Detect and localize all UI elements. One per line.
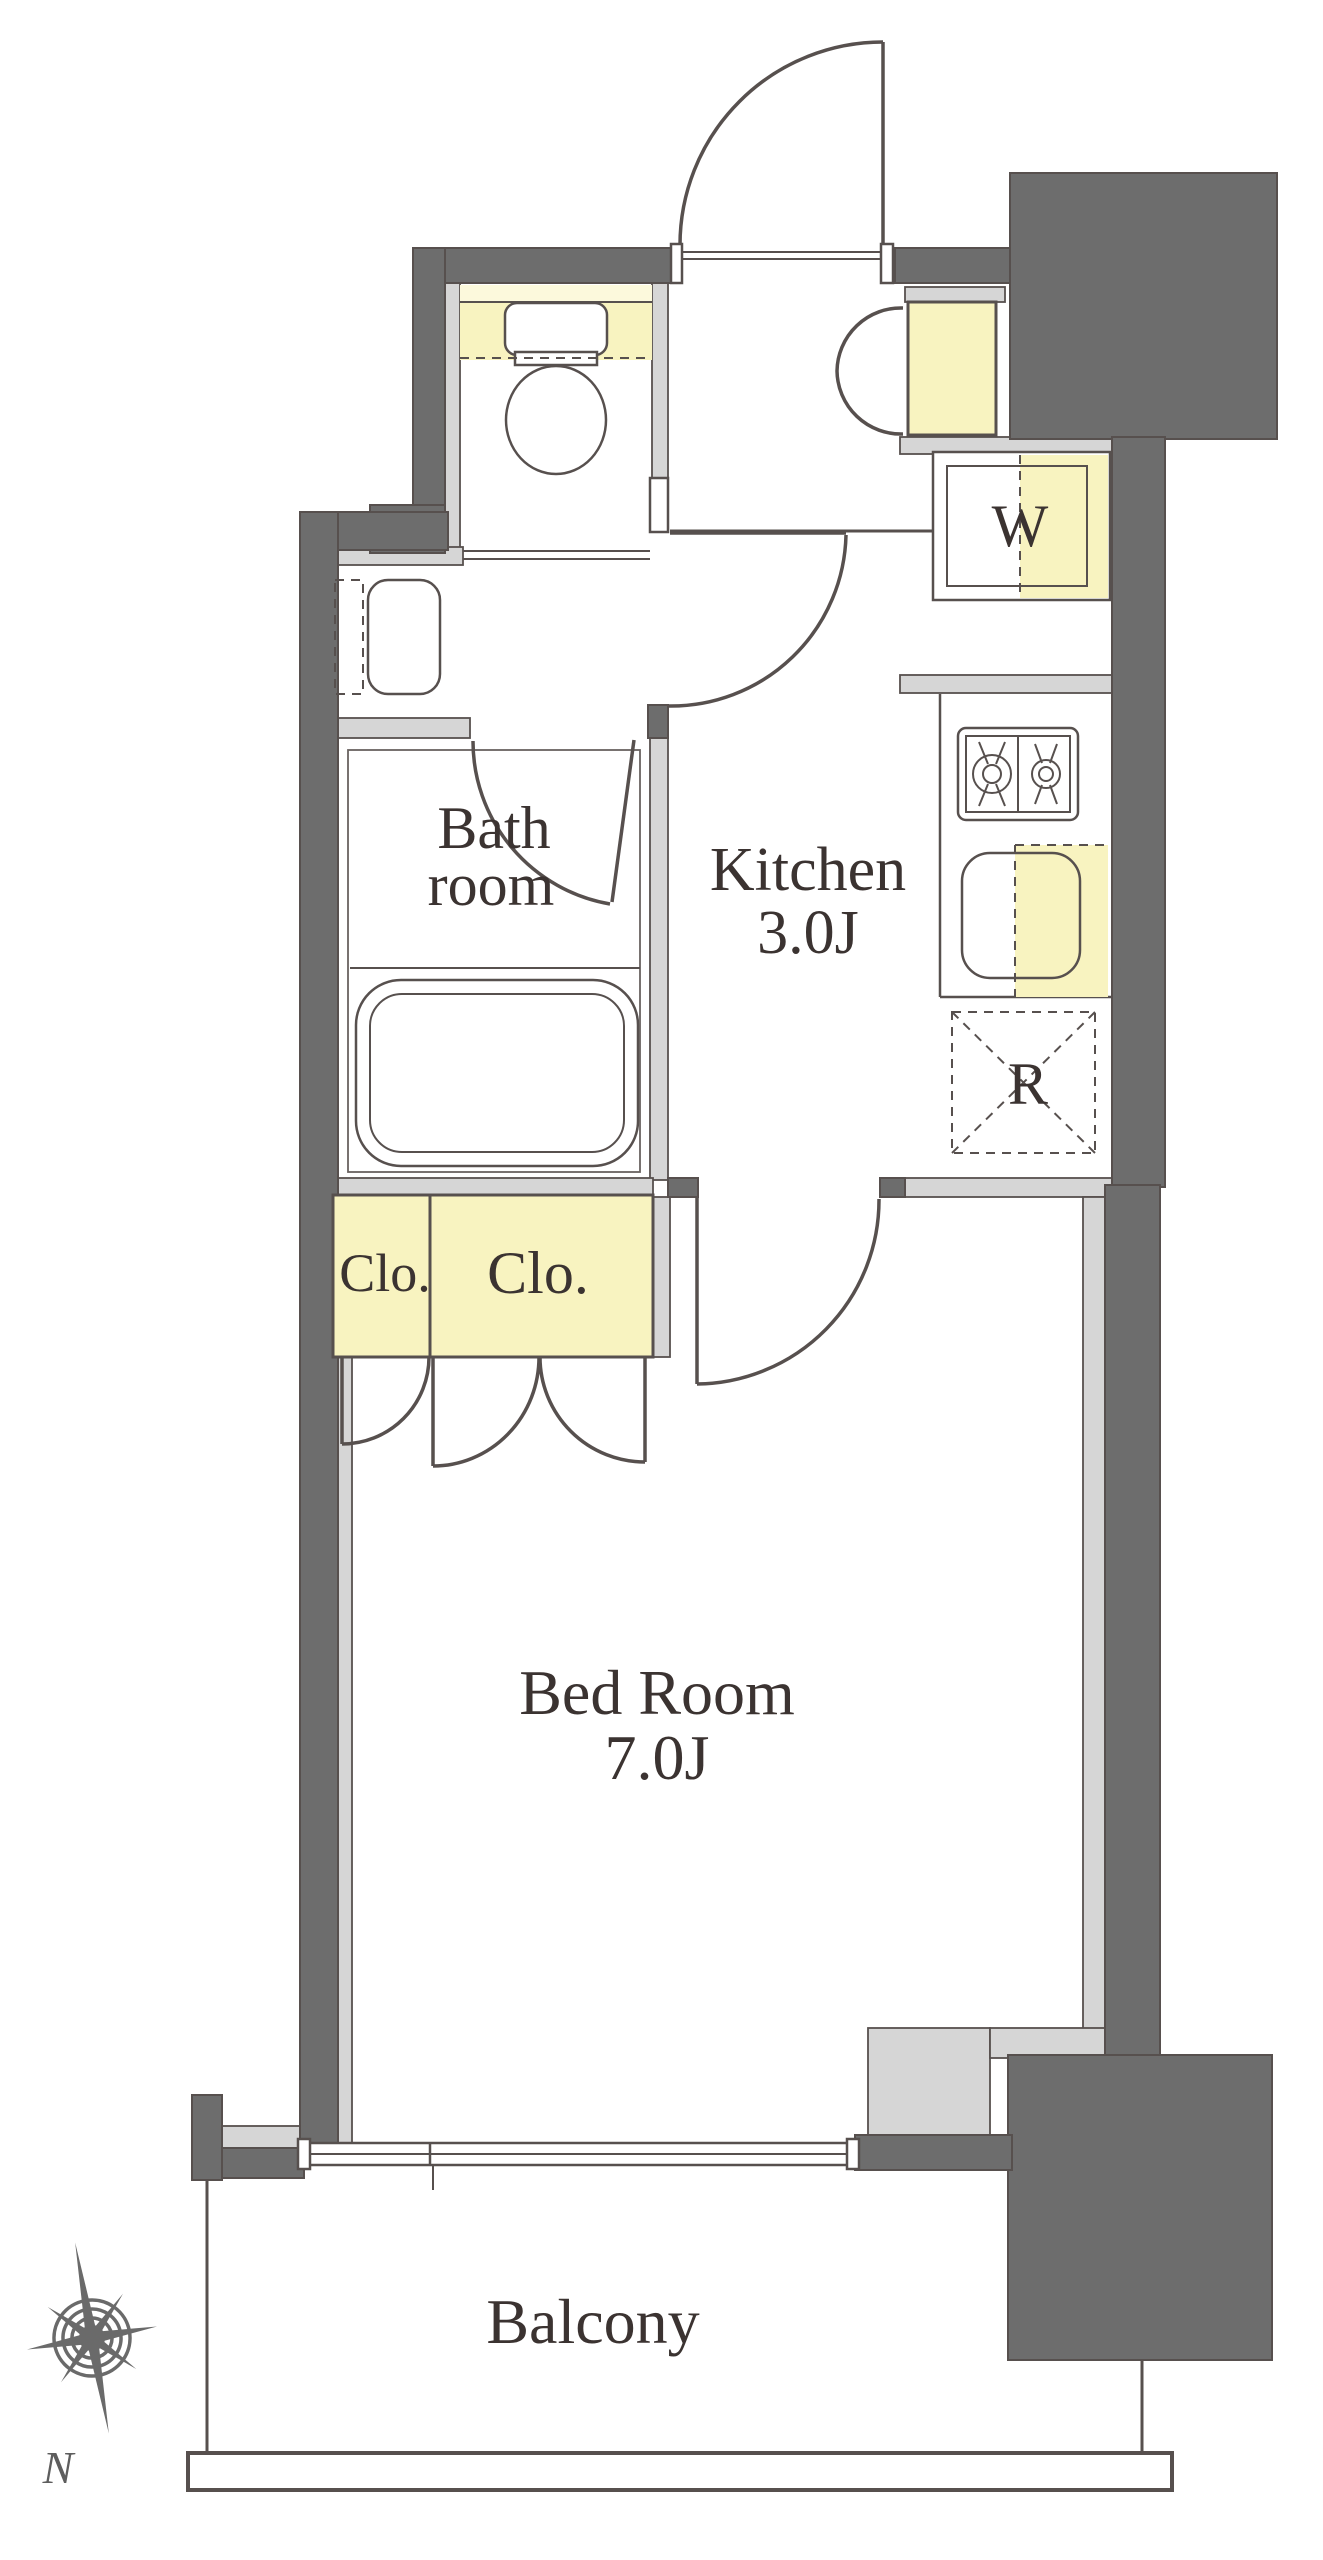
entry-door-jamb-right [881, 244, 893, 283]
toilet-tank [505, 303, 607, 355]
bedroom-door-jamb-right [880, 1178, 905, 1197]
toilet-shelf-strip [460, 285, 652, 302]
bath-divider-wall [336, 718, 470, 738]
washroom [335, 580, 440, 694]
bathroom-label-line2: room [428, 852, 555, 918]
entry-door-arc [680, 42, 883, 245]
bedroom-door-arc [697, 1199, 879, 1384]
bottom-left-stub [192, 2095, 222, 2180]
bath-kitchen-wall [650, 738, 668, 1180]
bottom-wall-right [855, 2135, 1012, 2170]
sink-highlight [1015, 845, 1108, 997]
floor-plan-page: Bath room Kitchen 3.0J W R Clo. Clo. Bed… [0, 0, 1323, 2560]
right-wall-bedroom [1105, 1185, 1160, 2060]
closet-large-door-right-arc [540, 1357, 645, 1462]
bottom-left-liner [218, 2126, 304, 2150]
shoe-cabinet-door-lower-arc [837, 371, 903, 434]
stove [958, 728, 1078, 820]
bedroom-right-liner [1083, 1197, 1105, 2040]
shoe-cabinet [908, 302, 996, 435]
compass-icon [10, 2231, 174, 2445]
washroom-door-jamb [650, 478, 668, 532]
bedroom-area-label: 7.0J [605, 1722, 710, 1793]
bedroom-label: Bed Room [519, 1657, 795, 1728]
refrigerator-label: R [1008, 1051, 1048, 1117]
closet-large-label: Clo. [487, 1240, 589, 1306]
pipe-shaft-block-top [1010, 173, 1277, 439]
bathtub-outer [356, 980, 638, 1166]
washer-label: W [992, 493, 1049, 559]
laundry-cabinet [335, 580, 363, 694]
closet-side-wall [653, 1197, 670, 1357]
washbasin [368, 580, 440, 694]
entry-right-wall [895, 248, 1012, 283]
window-jamb-left [298, 2139, 310, 2169]
closet-small-door-arc [342, 1357, 429, 1444]
shoe-cabinet-top-wall [905, 287, 1005, 302]
shoe-cabinet-door-upper-arc [837, 308, 903, 371]
closet-small-label: Clo. [339, 1243, 431, 1303]
left-wall-upper [413, 248, 445, 512]
washroom-door-arc [669, 535, 846, 706]
floor-plan-drawing: Bath room Kitchen 3.0J W R Clo. Clo. Bed… [0, 0, 1323, 2560]
corner-liner-a [868, 2028, 990, 2138]
kitchen-bedroom-wall [903, 1178, 1113, 1197]
top-wall [413, 248, 672, 283]
balcony-label: Balcony [486, 2286, 699, 2357]
toilet-bowl [506, 366, 606, 474]
window-jamb-right [847, 2139, 859, 2169]
counter-top-wall [900, 675, 1113, 693]
toilet-right-wall [652, 283, 668, 483]
corner-liner-b [990, 2028, 1108, 2058]
kitchen-label: Kitchen [710, 836, 906, 904]
bathtub-inner [370, 994, 624, 1152]
entry-door-jamb-left [671, 244, 682, 283]
compass-north-label: N [42, 2442, 76, 2493]
bath-door-jamb [648, 705, 668, 738]
pipe-shaft-block-bottom [1008, 2055, 1272, 2360]
balcony-railing [188, 2453, 1172, 2490]
closet-large-door-left-arc [433, 1357, 539, 1466]
right-wall-kitchen [1112, 437, 1165, 1187]
bathroom-door-leaf [612, 740, 634, 902]
kitchen-area-label: 3.0J [757, 899, 859, 967]
bedroom-door-jamb-left [668, 1178, 698, 1197]
